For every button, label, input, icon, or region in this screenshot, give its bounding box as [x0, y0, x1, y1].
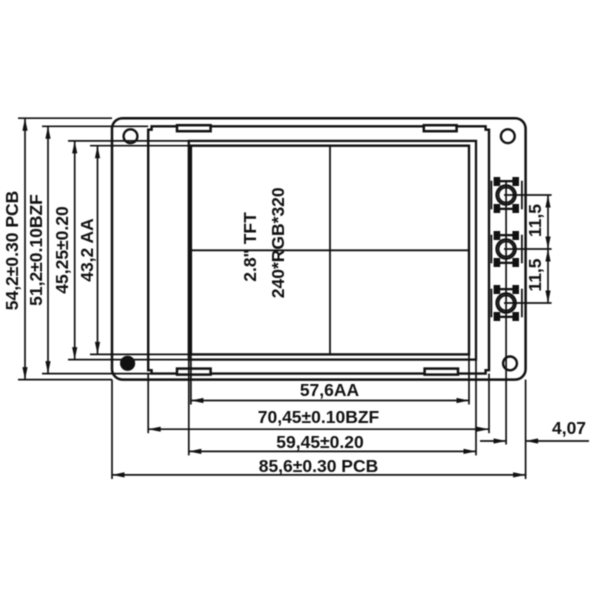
- svg-text:51,2±0.10BZF: 51,2±0.10BZF: [26, 194, 46, 306]
- svg-text:11,5: 11,5: [525, 258, 545, 291]
- svg-text:85,6±0.30 PCB: 85,6±0.30 PCB: [259, 456, 379, 476]
- svg-text:54,2±0.30 PCB: 54,2±0.30 PCB: [2, 191, 22, 311]
- svg-text:2.8" TFT: 2.8" TFT: [240, 212, 260, 282]
- svg-text:45,25±0.20: 45,25±0.20: [52, 206, 72, 294]
- svg-text:240*RGB*320: 240*RGB*320: [268, 187, 288, 298]
- svg-text:57,6AA: 57,6AA: [300, 380, 360, 400]
- svg-text:43,2 AA: 43,2 AA: [77, 218, 97, 282]
- svg-text:11,5: 11,5: [525, 204, 545, 237]
- svg-text:59,45±0.20: 59,45±0.20: [276, 432, 364, 452]
- svg-text:70,45±0.10BZF: 70,45±0.10BZF: [258, 407, 380, 427]
- svg-text:4,07: 4,07: [552, 418, 586, 438]
